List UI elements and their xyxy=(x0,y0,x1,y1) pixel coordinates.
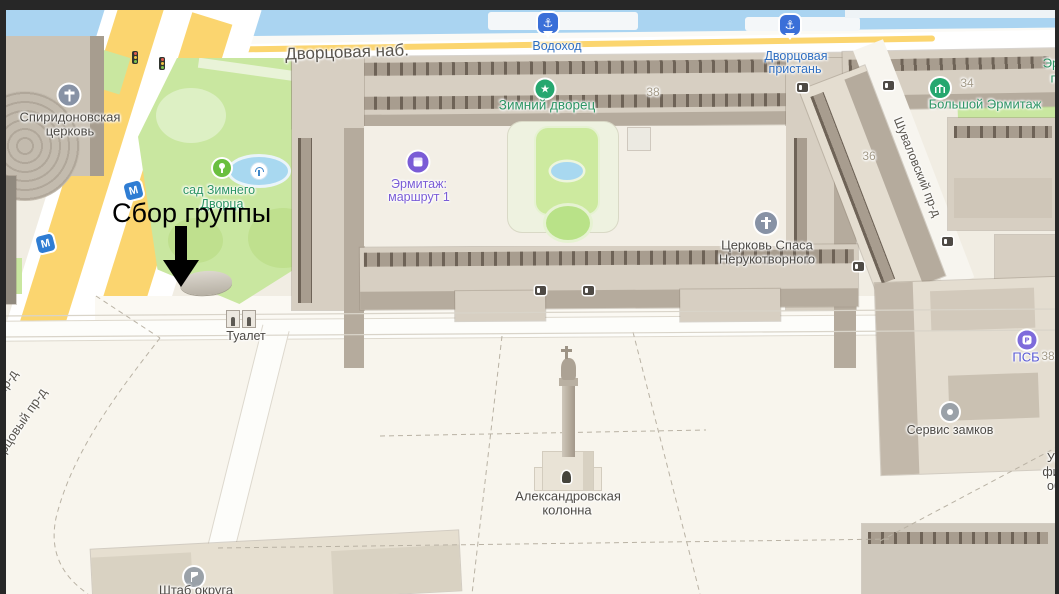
monument-icon[interactable] xyxy=(562,471,571,483)
service-dot-icon[interactable] xyxy=(941,403,959,421)
poi-label-psb[interactable]: ПСБ xyxy=(1012,351,1039,364)
map-canvas[interactable]: М М ⚓ ⚓ ★ Р xyxy=(0,0,1059,594)
entrance-icon xyxy=(942,237,953,246)
annotation-text: Сбор группы xyxy=(112,198,271,229)
building-number: 34 xyxy=(960,77,973,89)
poi-label-savior-church[interactable]: Церковь Спаса xyxy=(721,239,813,252)
screenshot-border-left xyxy=(0,0,6,594)
entrance-icon xyxy=(853,262,864,271)
fountain-icon xyxy=(251,163,267,179)
route-icon[interactable] xyxy=(408,152,429,173)
poi-label-hq[interactable]: Штаб округа xyxy=(159,584,233,594)
poi-label-alexander-column[interactable]: колонна xyxy=(542,504,591,517)
church-cross-icon[interactable] xyxy=(59,85,80,106)
poi-label-pier[interactable]: Дворцовая xyxy=(764,50,827,63)
poi-label-hermitage-route[interactable]: маршрут 1 xyxy=(388,191,450,204)
screenshot-border-top xyxy=(0,0,1059,10)
screenshot: М М ⚓ ⚓ ★ Р xyxy=(0,0,1059,594)
entrance-icon xyxy=(883,81,894,90)
poi-label-spiridon-church[interactable]: Спиридоновская xyxy=(20,111,121,124)
poi-label-pier[interactable]: пристань xyxy=(769,63,822,76)
street-label-embankment: Дворцовая наб. xyxy=(285,41,409,62)
entrance-icon xyxy=(535,286,546,295)
traffic-light-icon xyxy=(159,57,165,70)
poi-label-toilet[interactable]: Туалет xyxy=(226,330,266,343)
traffic-light-icon xyxy=(132,51,138,64)
star-icon[interactable]: ★ xyxy=(536,80,555,99)
toilet-icon[interactable] xyxy=(226,310,256,328)
anchor-pin-icon[interactable]: ⚓ xyxy=(780,15,800,40)
poi-label-winter-garden[interactable]: сад Зимнего xyxy=(183,184,255,197)
square-paths xyxy=(0,0,1059,594)
entrance-icon xyxy=(797,83,808,92)
poi-label-spiridon-church[interactable]: церковь xyxy=(46,125,95,138)
poi-label-big-hermitage[interactable]: Большой Эрмитаж xyxy=(929,98,1042,111)
poi-label-savior-church[interactable]: Нерукотворного xyxy=(719,253,815,266)
building-number: 38 xyxy=(646,86,659,98)
poi-label-hermitage-route[interactable]: Эрмитаж: xyxy=(391,178,447,191)
anchor-pin-icon[interactable]: ⚓ xyxy=(538,13,558,38)
poi-label-vodokhod[interactable]: Водоход xyxy=(532,40,581,53)
poi-label-alexander-column[interactable]: Александровская xyxy=(515,490,621,503)
poi-label-winter-palace[interactable]: Зимний дворец xyxy=(499,98,595,112)
museum-icon[interactable] xyxy=(930,78,950,98)
psb-bank-icon[interactable]: Р xyxy=(1018,331,1037,350)
tree-icon[interactable] xyxy=(213,159,231,177)
entrance-icon xyxy=(583,286,594,295)
church-cross-icon[interactable] xyxy=(755,212,777,234)
poi-label-lock-service[interactable]: Сервис замков xyxy=(907,424,994,437)
screenshot-border-right xyxy=(1055,0,1059,594)
building-number: 36 xyxy=(862,150,875,162)
